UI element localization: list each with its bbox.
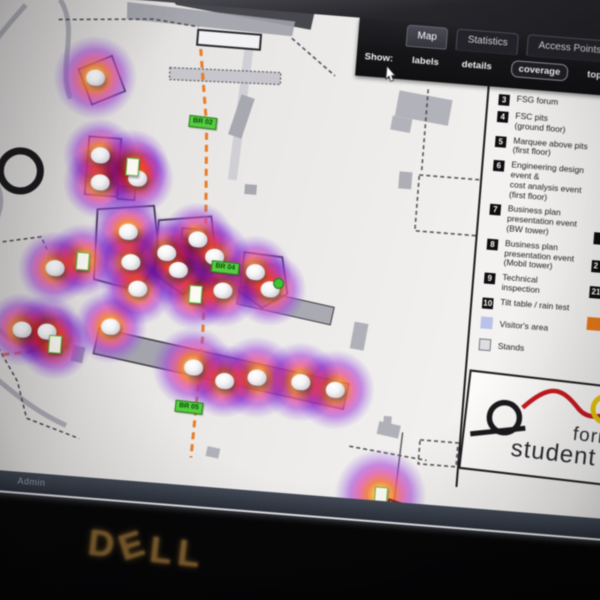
legend-item-8: 8 Business plan presentation event (Mobi… (485, 237, 600, 276)
route-waypoint-label: BR 05 (174, 400, 203, 415)
legend-label: Stands (497, 342, 524, 354)
tab-statistics[interactable]: Statistics (456, 29, 520, 56)
monitor-screen: BR 02BR 04BR 05 Map Statistics Access Po… (0, 0, 600, 547)
legend-overflow-item: 2 (591, 259, 600, 273)
legend-label: Engineering design event & cost analysis… (509, 161, 585, 206)
access-point-dome-icon[interactable] (90, 174, 110, 191)
legend-num: 4 (497, 111, 509, 123)
logged-in-user: Admin (17, 476, 46, 488)
legend-label: Technical inspection (501, 273, 541, 296)
access-point-dome-icon[interactable] (168, 261, 188, 278)
legend-visitor-area: Visitor's area (480, 316, 599, 337)
access-point-rect-icon[interactable] (125, 157, 139, 176)
tab-access-points[interactable]: Access Points (527, 34, 600, 63)
dell-logo: DELL (86, 521, 208, 576)
option-labels[interactable]: labels (407, 53, 443, 71)
legend-num: 3 (498, 94, 510, 106)
access-point-dome-icon[interactable] (90, 147, 110, 164)
route-waypoint-label: BR 02 (188, 115, 217, 130)
legend-label: Business plan presentation event (BW tow… (506, 205, 578, 240)
legend-item-4: 4 FSC pits (ground floor) (496, 110, 600, 139)
access-point-dome-icon[interactable] (247, 369, 267, 386)
access-point-dome-icon[interactable] (101, 318, 121, 335)
access-point-dome-icon[interactable] (215, 372, 235, 389)
legend-item-7: 7 Business plan presentation event (BW t… (488, 203, 600, 242)
legend-label: Tilt table / rain test (500, 298, 570, 316)
legend-label: Marquee above pits (first floor) (512, 136, 588, 162)
tab-map[interactable]: Map (406, 25, 449, 50)
option-topology[interactable]: topology (583, 67, 600, 86)
access-point-dome-icon[interactable] (85, 69, 105, 86)
legend-num: 8 (487, 238, 499, 250)
show-label: Show: (364, 51, 393, 64)
access-point-dome-icon[interactable] (128, 280, 148, 297)
access-point-dome-icon[interactable] (157, 244, 177, 261)
access-point-dome-icon[interactable] (188, 231, 208, 248)
legend-num: 21 (589, 286, 600, 299)
option-details[interactable]: details (457, 57, 496, 75)
access-point-dome-icon[interactable] (245, 263, 265, 280)
access-point-dome-icon[interactable] (213, 282, 233, 299)
access-point-dome-icon[interactable] (184, 359, 204, 376)
legend-item-6: 6 Engineering design event & cost analys… (491, 159, 600, 208)
option-coverage[interactable]: coverage (510, 60, 569, 82)
route-waypoint-label: BR 04 (211, 260, 240, 275)
ap-status-dot (273, 278, 285, 290)
legend-overflow-orange (586, 317, 600, 331)
visitor-area-swatch (480, 316, 493, 329)
dell-letters: LL (148, 528, 208, 575)
legend-overflow-item (593, 231, 600, 245)
mouse-cursor-icon (385, 66, 398, 83)
access-point-rect-icon[interactable] (76, 252, 90, 271)
legend-num: 7 (489, 204, 501, 216)
legend-item-5: 5 Marquee above pits (first floor) (494, 135, 600, 164)
legend-num: 9 (484, 273, 496, 285)
legend-num: 5 (495, 136, 507, 148)
orange-swatch (586, 317, 600, 331)
legend-num: 10 (482, 297, 494, 309)
stands-swatch (478, 338, 491, 351)
legend-num (593, 232, 600, 245)
access-point-rect-icon[interactable] (188, 285, 202, 304)
legend-num: 6 (493, 160, 505, 172)
photo-of-monitor: BR 02BR 04BR 05 Map Statistics Access Po… (0, 0, 600, 600)
legend-item-10: 10 Tilt table / rain test (482, 296, 600, 317)
legend-label: FSC pits (ground floor) (514, 111, 566, 135)
access-point-dome-icon[interactable] (325, 381, 345, 398)
access-point-dome-icon[interactable] (118, 223, 138, 240)
legend-label: Business plan presentation event (Mobil … (503, 239, 575, 274)
legend-overflow-item: 21 (589, 285, 600, 299)
access-point-dome-icon[interactable] (121, 253, 141, 270)
legend-label: Visitor's area (499, 320, 548, 334)
access-point-dome-icon[interactable] (291, 373, 311, 390)
legend-label: FSG forum (516, 95, 558, 110)
legend-num: 2 (591, 260, 600, 273)
access-point-rect-icon[interactable] (48, 335, 62, 354)
access-point-dome-icon[interactable] (45, 259, 65, 276)
dell-letter-e: E (114, 520, 155, 569)
access-point-dome-icon[interactable] (12, 321, 32, 338)
legend-stands: Stands (478, 338, 597, 359)
